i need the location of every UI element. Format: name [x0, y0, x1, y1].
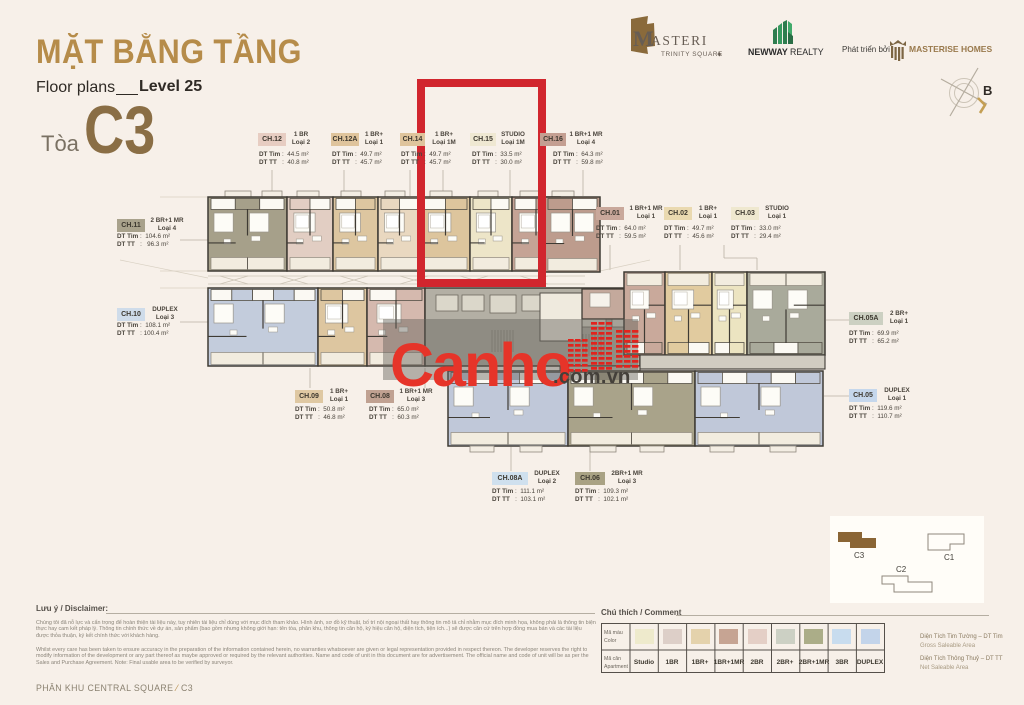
- svg-text:C3: C3: [854, 551, 865, 560]
- svg-text:2BR: 2BR: [750, 659, 763, 666]
- svg-text:Studio: Studio: [634, 659, 654, 666]
- svg-text:Mã căn: Mã căn: [604, 656, 621, 662]
- svg-text:Mã màu: Mã màu: [604, 630, 623, 636]
- svg-text:3BR: 3BR: [835, 659, 848, 666]
- svg-text:2BR+: 2BR+: [777, 659, 794, 666]
- svg-text:Apartment: Apartment: [604, 664, 628, 670]
- svg-text:DUPLEX: DUPLEX: [857, 659, 884, 666]
- svg-text:1BR: 1BR: [665, 659, 678, 666]
- svg-text:2BR+1MR: 2BR+1MR: [799, 659, 830, 666]
- svg-text:C1: C1: [944, 553, 955, 562]
- svg-text:Color: Color: [604, 638, 617, 644]
- svg-text:1BR+1MR: 1BR+1MR: [714, 659, 745, 666]
- svg-text:1BR+: 1BR+: [692, 659, 709, 666]
- svg-text:C2: C2: [896, 565, 907, 574]
